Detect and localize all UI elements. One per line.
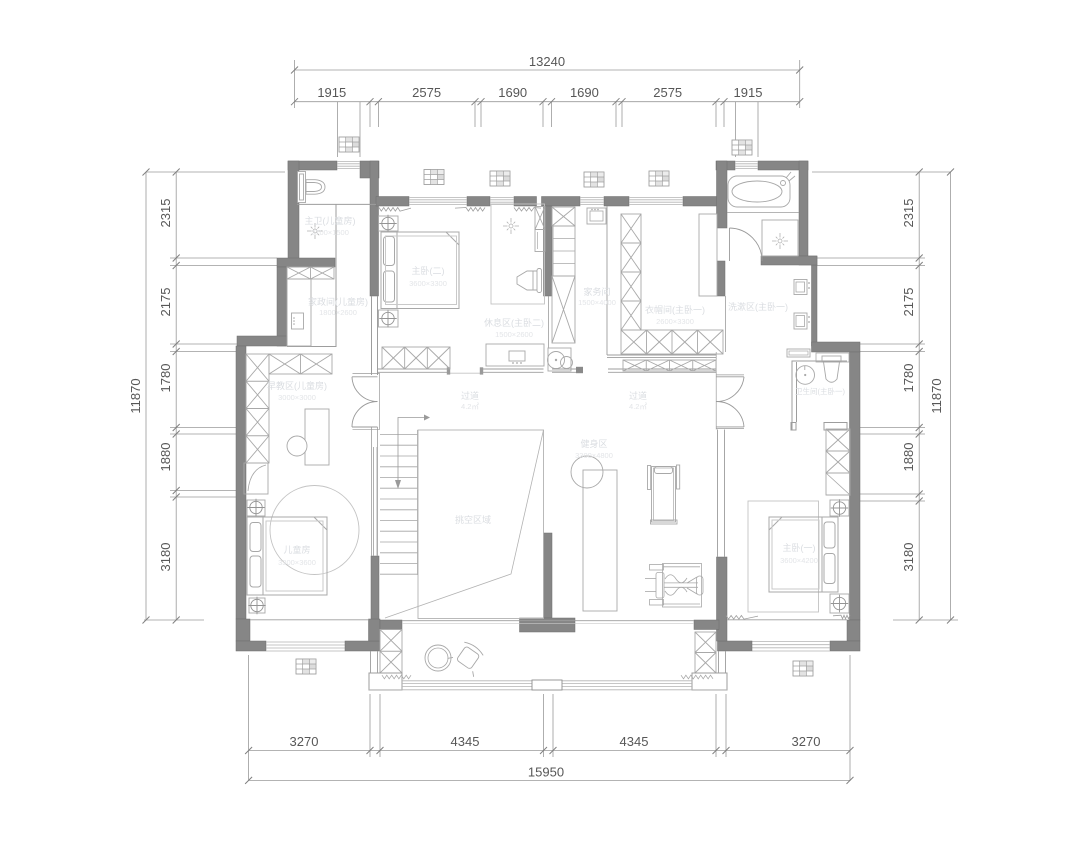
svg-text:家务间: 家务间 [583,286,610,297]
svg-text:3270: 3270 [290,734,319,749]
svg-text:3300×4800: 3300×4800 [575,451,613,460]
svg-text:早教区(儿童房): 早教区(儿童房) [267,380,327,391]
svg-text:1780: 1780 [901,364,916,393]
svg-text:1500×4000: 1500×4000 [578,298,616,307]
svg-text:15950: 15950 [528,765,564,780]
svg-text:3180: 3180 [158,543,173,572]
svg-text:2575: 2575 [412,85,441,100]
svg-text:1880: 1880 [158,443,173,472]
svg-text:3270: 3270 [792,734,821,749]
svg-text:卫生间(主卧一): 卫生间(主卧一) [795,386,845,396]
svg-text:1690: 1690 [498,85,527,100]
svg-text:2175: 2175 [901,288,916,317]
svg-text:洗漱区(主卧一): 洗漱区(主卧一) [728,301,788,312]
svg-text:儿童房: 儿童房 [283,544,310,555]
svg-text:4.2㎡: 4.2㎡ [461,402,479,411]
svg-text:2175: 2175 [158,288,173,317]
svg-text:衣帽间(主卧一): 衣帽间(主卧一) [645,304,705,315]
svg-text:1690: 1690 [570,85,599,100]
svg-text:4.2㎡: 4.2㎡ [629,402,647,411]
svg-text:家政间(儿童房): 家政间(儿童房) [308,296,368,307]
svg-text:休息区(主卧二): 休息区(主卧二) [484,317,544,328]
svg-text:4345: 4345 [451,734,480,749]
svg-text:2315: 2315 [901,199,916,228]
svg-text:主卧(二): 主卧(二) [412,265,445,276]
svg-text:1915: 1915 [734,85,763,100]
svg-text:2315: 2315 [158,199,173,228]
svg-text:主卫(儿童房): 主卫(儿童房) [305,215,356,226]
svg-text:过道: 过道 [461,390,479,401]
svg-text:1800×2600: 1800×2600 [319,308,357,317]
svg-text:健身区: 健身区 [580,438,607,449]
svg-text:4345: 4345 [620,734,649,749]
svg-text:3300×3600: 3300×3600 [278,558,316,567]
svg-text:3180: 3180 [901,543,916,572]
svg-text:11870: 11870 [929,378,944,413]
svg-text:13240: 13240 [529,54,565,69]
svg-text:11870: 11870 [128,378,143,413]
svg-text:1780: 1780 [158,364,173,393]
svg-text:1500×2600: 1500×2600 [495,330,533,339]
svg-text:3600×3300: 3600×3300 [409,279,447,288]
svg-text:1915: 1915 [317,85,346,100]
svg-text:2700×1500: 2700×1500 [311,228,349,237]
svg-text:1880: 1880 [901,443,916,472]
svg-text:2600×3300: 2600×3300 [656,317,694,326]
svg-text:过道: 过道 [629,390,647,401]
svg-text:2575: 2575 [653,85,682,100]
svg-text:主卧(一): 主卧(一) [783,542,816,553]
svg-text:挑空区域: 挑空区域 [455,514,491,525]
svg-text:3600×4200: 3600×4200 [780,556,818,565]
svg-text:3000×3000: 3000×3000 [278,393,316,402]
